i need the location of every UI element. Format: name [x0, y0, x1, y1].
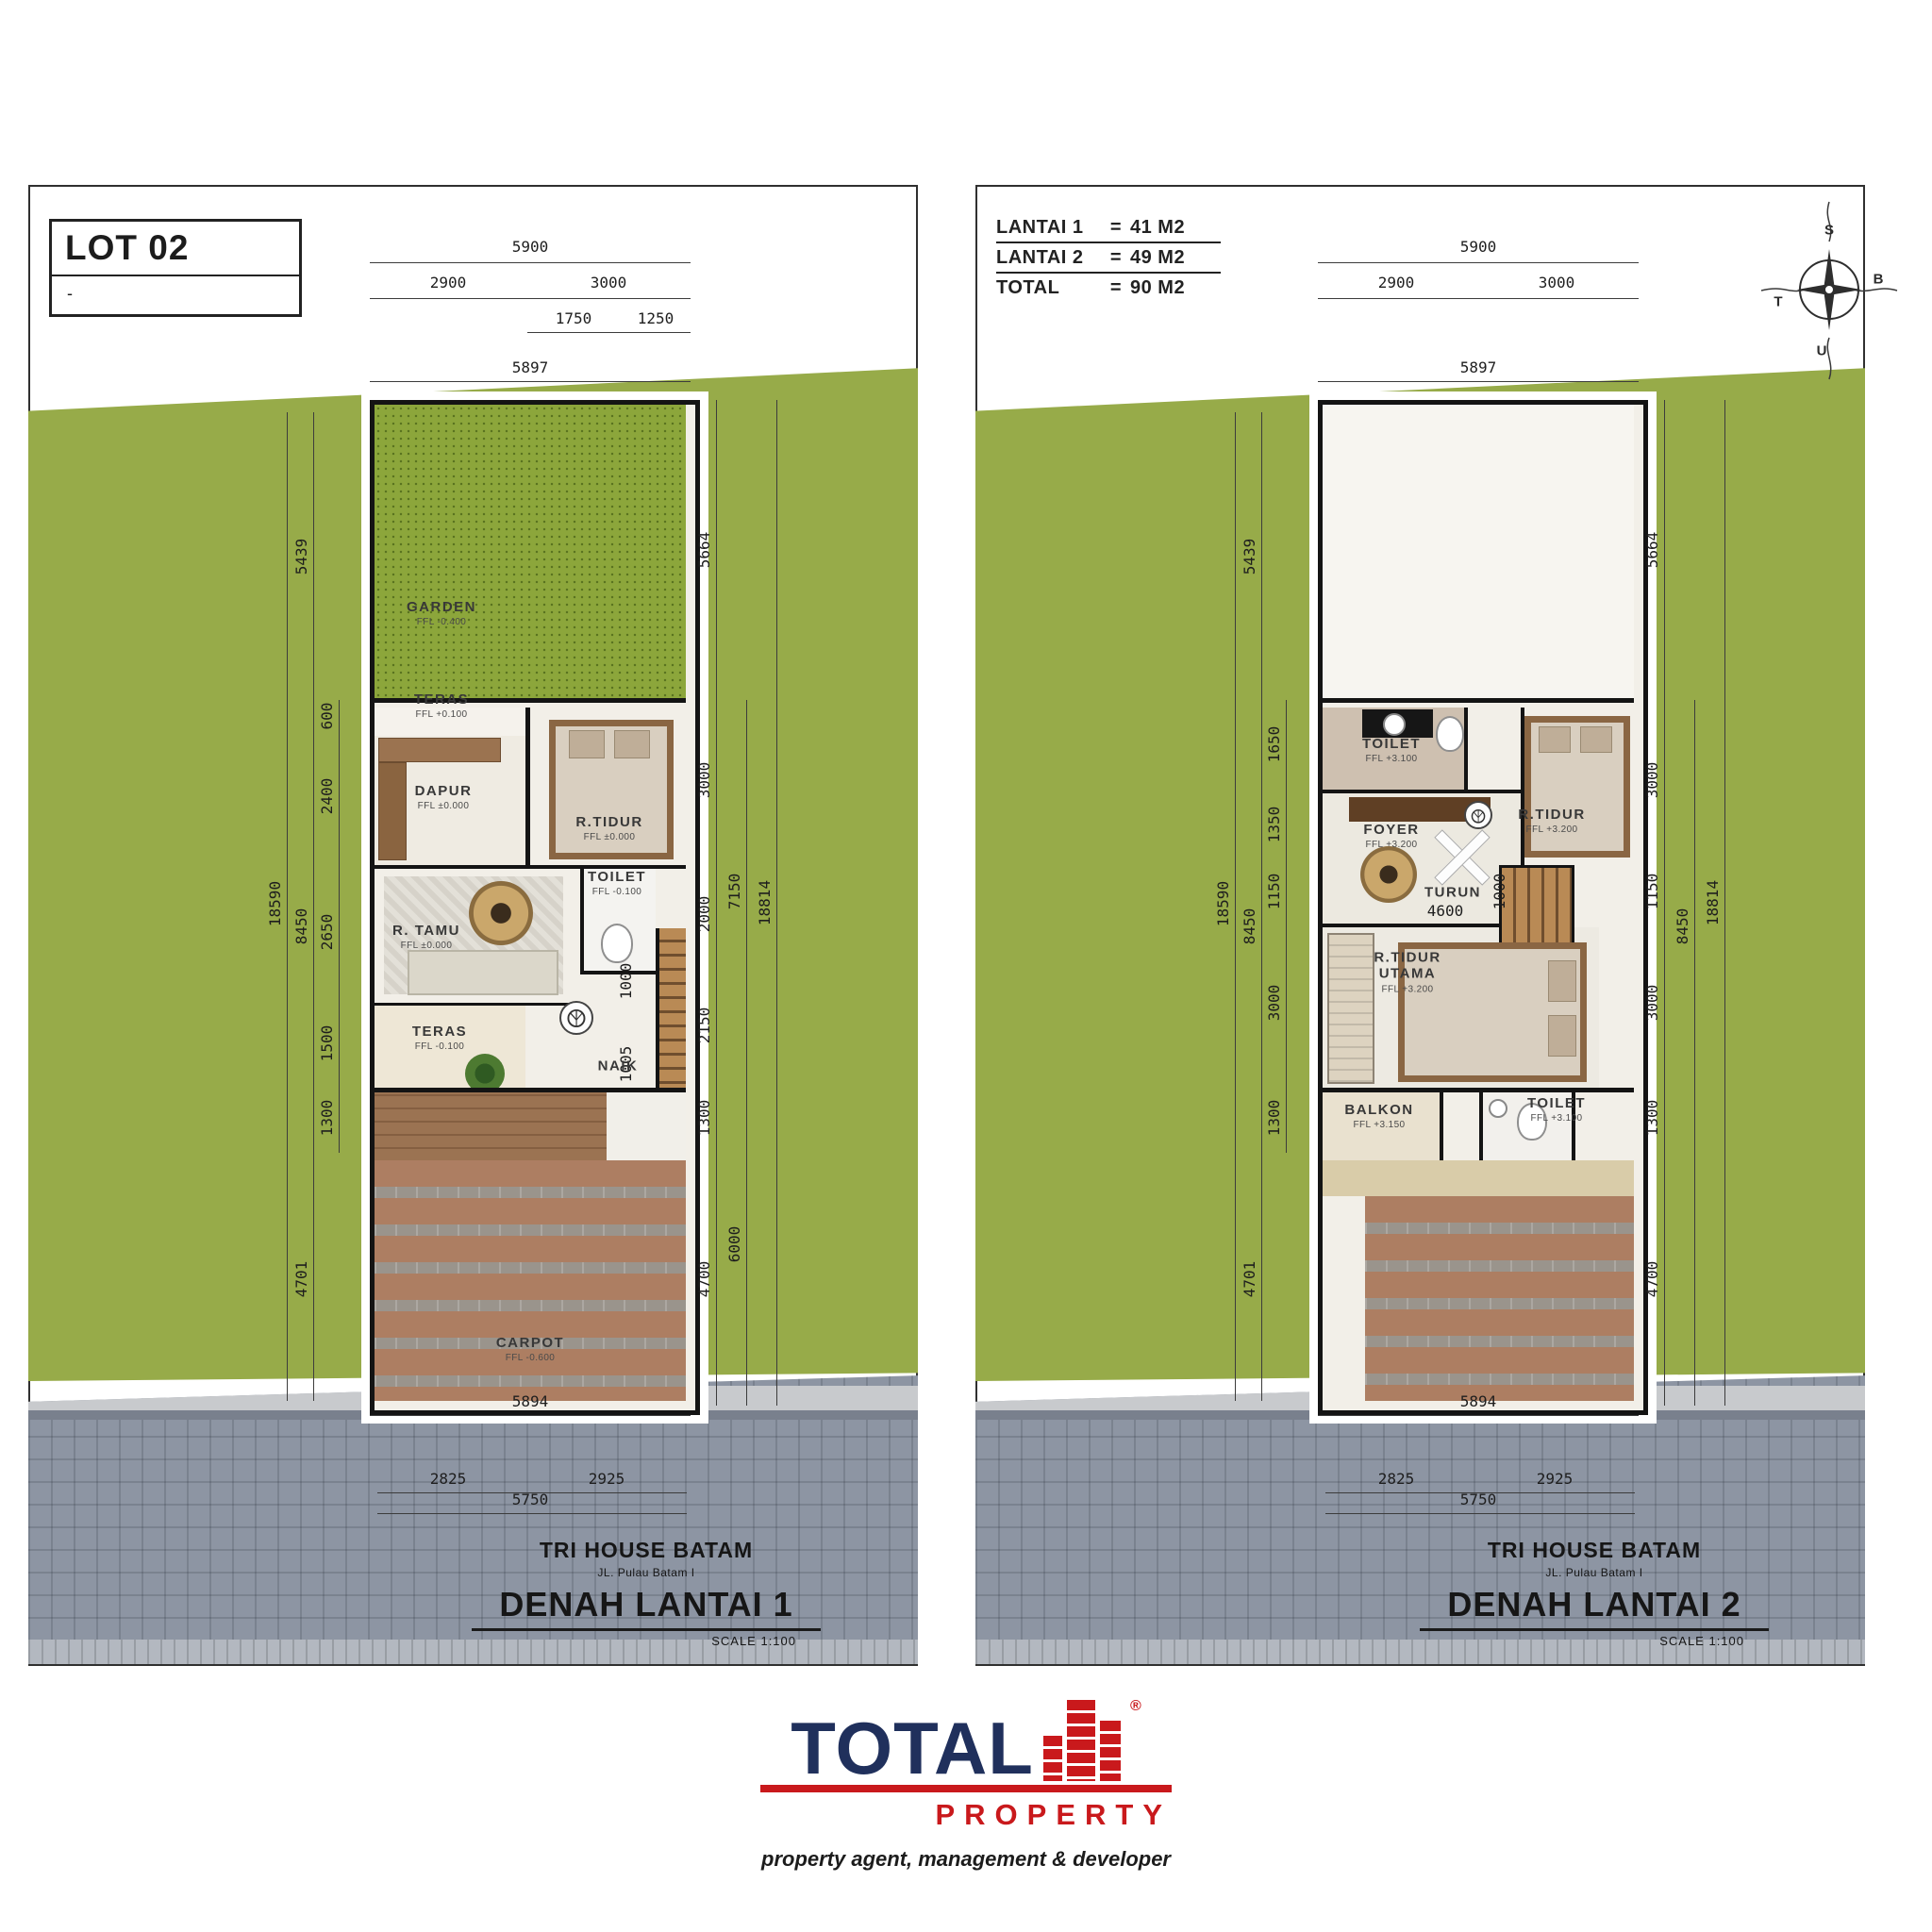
- logo-subtitle: PROPERTY: [760, 1798, 1172, 1832]
- area-table-cell: 41 M2: [1130, 217, 1221, 239]
- area-table: LANTAI 1=41 M2LANTAI 2=49 M2TOTAL=90 M2: [996, 213, 1221, 302]
- logo-wordmark: TOTAL: [791, 1715, 1034, 1781]
- kitchen-counter-icon: [378, 738, 501, 762]
- pillow-icon: [614, 730, 650, 758]
- titleblock-lantai1: TRI HOUSE BATAM JL. Pulau Batam I DENAH …: [472, 1538, 821, 1648]
- drawing-title: DENAH LANTAI 2: [1420, 1585, 1769, 1631]
- sofa-icon: [408, 950, 558, 995]
- balkon-floor: [1323, 1092, 1443, 1160]
- tower-icon: [1043, 1736, 1062, 1781]
- project-address: JL. Pulau Batam I: [1420, 1566, 1769, 1579]
- carport-roof: [1365, 1196, 1634, 1401]
- logo: TOTAL ® PROPERTY property agent, managem…: [760, 1698, 1172, 1872]
- tower-icon: [1067, 1700, 1095, 1781]
- compass-letter-top: S: [1824, 223, 1834, 239]
- area-table-cell: LANTAI 2: [996, 247, 1102, 269]
- round-rug-icon: [469, 881, 533, 945]
- wall: [525, 708, 530, 865]
- ceiling-fan-icon: ☮: [1464, 801, 1492, 829]
- compass-letter-right: B: [1874, 272, 1884, 288]
- pillow-icon: [1580, 726, 1612, 753]
- sink-icon: [1383, 713, 1406, 736]
- canopy-strip: [1323, 1160, 1634, 1196]
- toilet-bowl-icon: [1517, 1103, 1547, 1141]
- sink-icon: [1489, 1099, 1507, 1118]
- compass-letter-left: T: [1774, 294, 1782, 310]
- project-name: TRI HOUSE BATAM: [472, 1538, 821, 1563]
- tower-icon: [1100, 1721, 1121, 1781]
- pillow-icon: [1548, 1015, 1576, 1057]
- bed-icon: [549, 720, 674, 859]
- stairs-naik: [656, 928, 686, 1089]
- project-name: TRI HOUSE BATAM: [1420, 1538, 1769, 1563]
- area-table-cell: TOTAL: [996, 277, 1102, 299]
- area-table-row: TOTAL=90 M2: [996, 274, 1221, 302]
- area-table-cell: =: [1102, 217, 1130, 239]
- pillow-icon: [569, 730, 605, 758]
- round-rug-icon: [1360, 846, 1417, 903]
- deck-side-floor: [607, 1092, 686, 1160]
- building-lantai2: ☮: [1318, 400, 1648, 1415]
- wood-deck: [375, 1092, 607, 1160]
- lot-number: LOT 02: [52, 222, 299, 276]
- carport-floor: [375, 1160, 686, 1401]
- area-table-cell: =: [1102, 247, 1130, 269]
- wardrobe-icon: [1327, 933, 1374, 1084]
- lot-label-box: LOT 02 -: [49, 219, 302, 317]
- compass-letter-bottom: U: [1817, 343, 1827, 359]
- titleblock-lantai2: TRI HOUSE BATAM JL. Pulau Batam I DENAH …: [1420, 1538, 1769, 1648]
- drawing-scale: SCALE 1:100: [1420, 1634, 1769, 1648]
- area-table-cell: 90 M2: [1130, 277, 1221, 299]
- wall: [1464, 708, 1468, 790]
- project-address: JL. Pulau Batam I: [472, 1566, 821, 1579]
- bed-icon: [1398, 942, 1587, 1082]
- pillow-icon: [1539, 726, 1571, 753]
- area-table-cell: 49 M2: [1130, 247, 1221, 269]
- area-table-row: LANTAI 2=49 M2: [996, 243, 1221, 274]
- area-table-cell: LANTAI 1: [996, 217, 1102, 239]
- bed-icon: [1524, 716, 1630, 858]
- area-table-cell: =: [1102, 277, 1130, 299]
- garden-area: [375, 405, 686, 703]
- toilet-bowl-icon: [1436, 716, 1464, 752]
- logo-tagline: property agent, management & developer: [760, 1847, 1172, 1872]
- logo-building-icon: [1043, 1698, 1121, 1781]
- kitchen-counter-icon: [378, 762, 407, 860]
- registered-mark: ®: [1130, 1698, 1141, 1715]
- teras-atas-floor: [375, 708, 525, 736]
- lot-note: -: [52, 276, 299, 310]
- roof-deck-floor: [1323, 405, 1634, 703]
- drawing-title: DENAH LANTAI 1: [472, 1585, 821, 1631]
- building-lantai1: ☮: [370, 400, 700, 1415]
- compass: S B U T: [1752, 196, 1907, 385]
- toilet-bowl-icon: [601, 924, 633, 963]
- area-table-row: LANTAI 1=41 M2: [996, 213, 1221, 243]
- drawing-scale: SCALE 1:100: [472, 1634, 821, 1648]
- ceiling-fan-icon: ☮: [559, 1001, 593, 1035]
- pillow-icon: [1548, 960, 1576, 1002]
